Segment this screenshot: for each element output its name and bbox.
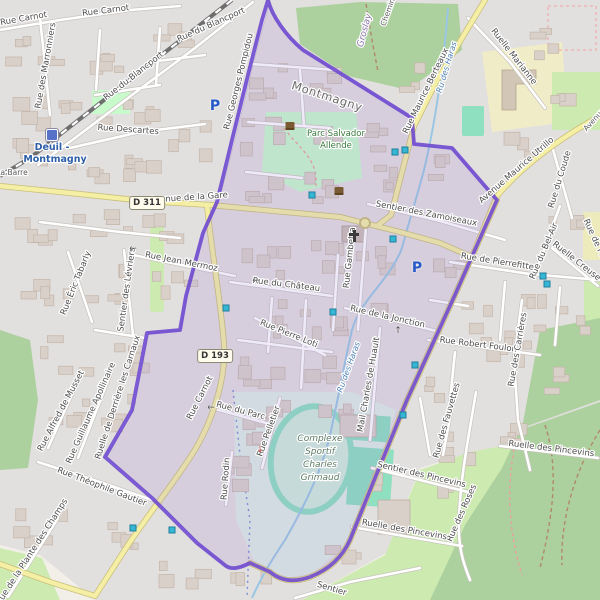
- building: [135, 162, 147, 172]
- building: [534, 325, 546, 332]
- building: [143, 215, 155, 227]
- building: [400, 86, 415, 92]
- building: [101, 54, 115, 61]
- building: [530, 32, 546, 39]
- building: [504, 132, 520, 145]
- sport-label: Charles: [303, 460, 337, 470]
- building: [236, 573, 245, 586]
- building: [415, 63, 425, 73]
- building: [146, 161, 161, 174]
- building: [16, 509, 26, 521]
- building: [159, 574, 174, 587]
- building: [548, 44, 559, 54]
- building: [21, 291, 37, 299]
- building: [115, 344, 126, 352]
- building: [104, 210, 120, 220]
- building: [61, 103, 70, 113]
- building: [154, 214, 165, 227]
- building: [195, 569, 211, 578]
- building: [15, 218, 30, 230]
- building: [89, 168, 100, 177]
- sport-label: Complexe: [297, 434, 343, 444]
- building: [59, 366, 73, 374]
- building: [34, 235, 49, 242]
- building: [41, 347, 49, 359]
- building: [553, 367, 564, 377]
- map-canvas[interactable]: Rue CarnotRue CarnotRue du BlancportRue …: [0, 0, 600, 600]
- building: [6, 57, 22, 66]
- building: [23, 37, 31, 46]
- building: [159, 561, 167, 570]
- street-label: La Barre: [0, 168, 28, 177]
- station-label: Montmagny: [23, 154, 87, 165]
- building: [179, 129, 190, 142]
- building: [22, 112, 38, 125]
- building: [527, 298, 535, 309]
- building: [434, 393, 444, 402]
- building: [186, 578, 198, 589]
- building: [14, 527, 30, 538]
- building: [16, 139, 28, 153]
- park-label: Parc Salvador: [307, 129, 365, 139]
- station-label: Deuil -: [35, 142, 70, 153]
- building: [13, 97, 30, 111]
- park-label: Allende: [320, 141, 352, 151]
- building: [426, 377, 435, 387]
- building: [535, 51, 545, 60]
- building: [544, 388, 560, 394]
- building: [484, 305, 493, 316]
- building: [551, 96, 560, 104]
- building: [108, 522, 117, 529]
- building: [469, 323, 483, 334]
- building: [36, 118, 51, 131]
- building: [152, 272, 161, 282]
- sport-label: Sportif: [305, 447, 337, 457]
- building: [73, 214, 85, 223]
- building: [199, 149, 212, 162]
- building: [169, 140, 179, 152]
- building: [41, 287, 50, 299]
- building: [124, 169, 136, 182]
- building: [161, 286, 170, 299]
- building: [580, 326, 590, 335]
- building: [172, 272, 184, 283]
- building: [154, 35, 171, 41]
- building: [48, 230, 57, 241]
- map-base-svg: Rue CarnotRue CarnotRue du BlancportRue …: [0, 0, 600, 600]
- building: [69, 102, 82, 110]
- building: [145, 109, 160, 121]
- building: [115, 66, 124, 72]
- building: [576, 316, 585, 325]
- sport-label: Grimaud: [301, 473, 340, 483]
- building: [47, 336, 63, 343]
- building: [537, 295, 546, 309]
